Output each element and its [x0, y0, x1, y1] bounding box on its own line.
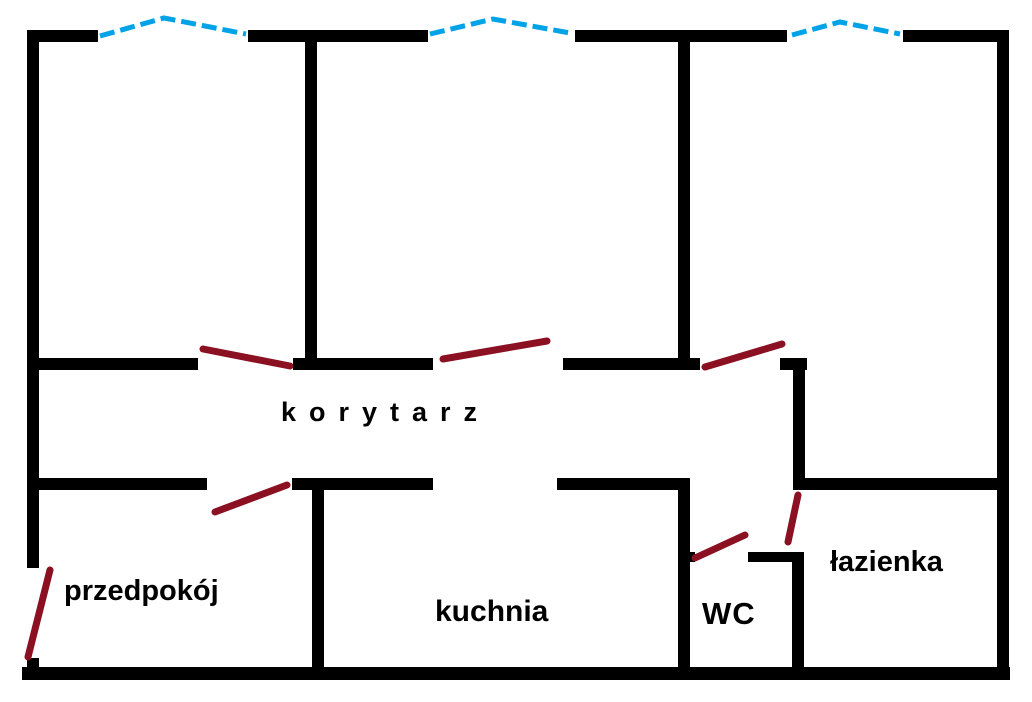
kitchen-left-wall-wall	[312, 478, 324, 678]
bathroom-top-wall-wall	[797, 478, 1009, 490]
corridor-bottom-segment-3-wall	[557, 478, 690, 490]
room-divider-1-wall	[305, 30, 317, 363]
room-label-przedpokoj: przedpokój	[64, 577, 219, 606]
room-label-wc: WC	[702, 598, 756, 629]
corridor-top-segment-1-wall	[27, 358, 198, 370]
room-label-korytarz: korytarz	[281, 399, 490, 426]
bathroom-left-wall-upper-wall	[793, 358, 805, 490]
room-label-kuchnia: kuchnia	[435, 597, 548, 627]
door-lazienka-door-icon	[788, 495, 798, 542]
door-room-2-door-icon	[443, 341, 547, 359]
right-wall-wall	[997, 30, 1009, 680]
floor-plan: korytarz przedpokój kuchnia WC łazienka	[0, 0, 1032, 702]
wc-right-wall-wall	[792, 552, 804, 678]
door-room-1-door-icon	[203, 349, 290, 366]
room-divider-2-wall	[678, 30, 690, 370]
door-entrance-door-icon	[28, 570, 50, 657]
door-room-3-door-icon	[705, 344, 782, 367]
top-wall-segment-4-wall	[903, 30, 1007, 42]
corridor-top-segment-2-wall	[293, 358, 433, 370]
window-room-3-window-icon	[792, 22, 900, 35]
corridor-top-segment-3-wall	[563, 358, 700, 370]
door-wc-door-icon	[695, 535, 745, 558]
door-przedpokoj-door-icon	[215, 485, 287, 512]
window-room-2-window-icon	[430, 19, 570, 34]
room-label-lazienka: łazienka	[830, 548, 943, 577]
bottom-wall-wall	[22, 667, 1010, 680]
window-room-1-window-icon	[100, 18, 246, 36]
kitchen-right-wall-wall	[678, 478, 690, 678]
corridor-bottom-segment-1-wall	[27, 478, 207, 490]
top-wall-segment-2-wall	[248, 30, 428, 42]
